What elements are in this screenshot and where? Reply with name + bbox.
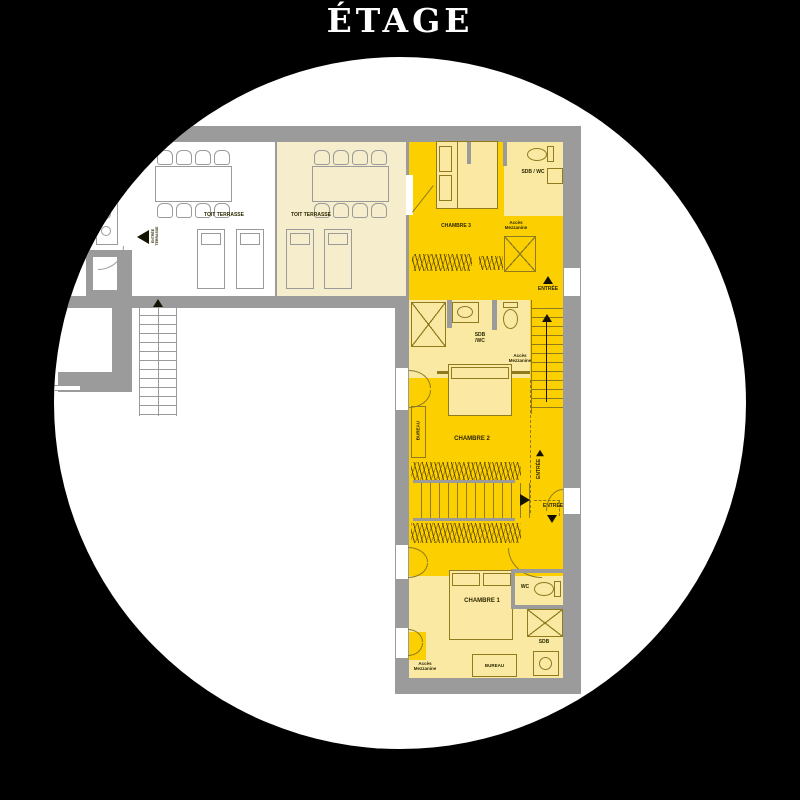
acces-line2: Mezzanine [505,225,528,230]
acces-line2: Mezzanine [509,358,532,363]
sun-lounger [324,229,352,289]
wall-stub [511,569,563,573]
shower-icon [527,609,563,637]
wall-shaft-column [112,292,132,376]
floor-plan: TOIT TERRASSE TOIT TERRASSE ENTRÉE [54,57,746,749]
toilet-tank [547,146,554,162]
door-gap [396,368,408,410]
lounger-pillow [240,233,260,245]
plan-circle-viewport: TOIT TERRASSE TOIT TERRASSE ENTRÉE [54,57,746,749]
room-label-sdb: SDB [528,640,560,646]
room-label-chambre3: CHAMBRE 3 [426,224,486,230]
wardrobe-hatch [479,256,503,270]
toilet-icon [527,148,547,161]
toilet-tank [554,581,561,597]
wardrobe-hatch [412,254,472,271]
pillow-icon [439,146,452,172]
terrace-entry-label: ENTRÉE TERRASSE [151,221,159,251]
door-gap [406,175,413,215]
entry-label-vertical: ENTRÉE [537,451,543,487]
chair-icon [176,150,192,165]
sun-lounger [236,229,264,289]
sdb-mid-line2: /WC [475,338,485,344]
stair-stem [546,322,547,402]
bureau-label: BUREAU [415,414,420,448]
door-gap [396,545,408,579]
staircase-mid [413,483,531,518]
sun-lounger [197,229,225,289]
wall-wing-bottom [395,678,581,694]
acces-mezzanine-label: Accès Mezzanine [492,220,540,230]
chair-icon [371,203,387,218]
room-label-chambre1: CHAMBRE 1 [451,598,513,605]
stair-direction-arrow-icon [520,494,530,506]
chair-icon [314,150,330,165]
pillow-band [451,367,509,379]
door-gap [564,488,580,514]
room-label-chambre2: CHAMBRE 2 [441,436,503,443]
terrace-left-label: TOIT TERRASSE [179,213,269,219]
wall-top [54,126,581,142]
floor-plan-page: ÉTAGE [0,0,800,800]
handrail [413,518,515,521]
entry-arrow-icon [547,515,557,523]
chair-icon [371,150,387,165]
door-gap [396,628,408,658]
wall-stub [467,142,471,164]
chair-icon [333,150,349,165]
wall-wing-right [563,126,581,694]
bed-fold-line [457,142,458,208]
terrace-entry-line2: TERRASSE [155,226,159,245]
room-label-wc: WC [516,585,534,591]
chair-icon [157,150,173,165]
window-left-room [54,385,80,391]
terrace-right-label: TOIT TERRASSE [266,213,356,219]
acces-mezzanine-label: Accès Mezzanine [496,353,544,363]
sun-lounger [286,229,314,289]
chair-icon [352,150,368,165]
page-title: ÉTAGE [0,1,800,40]
burner-icon [101,209,111,219]
stair-direction-arrow-icon [153,299,163,307]
toilet-tank [503,302,518,308]
wall-stub [447,300,452,328]
lounger-pillow [201,233,221,245]
entry-arrow-icon [543,276,553,284]
sink-basin [539,657,552,670]
dining-table [155,166,232,202]
entry-label-top: ENTRÉE [528,287,568,293]
staircase-divider [158,298,159,416]
pillow-icon [452,573,480,586]
sink-icon [547,168,563,184]
dining-table [312,166,389,202]
room-label-sdb-mid: SDB /WC [458,333,502,345]
sink-basin [457,306,473,318]
acces-mezzanine-label: Accès Mezzanine [404,661,446,671]
chair-icon [195,150,211,165]
chair-icon [214,150,230,165]
burner-icon [101,226,111,236]
pillow-icon [483,573,511,586]
wardrobe-hatch [411,462,521,480]
mezzanine-stair [504,236,536,272]
wall-stub [511,569,515,609]
wall-stub [503,142,507,166]
bureau-label: BUREAU [475,663,514,668]
terrace-entry-arrow-icon [137,230,149,244]
stair-direction-arrow-icon [542,314,552,322]
toilet-icon [534,582,554,596]
acces-line2: Mezzanine [414,666,437,671]
shower-icon [411,302,446,347]
pillow-icon [439,175,452,201]
lounger-pillow [328,233,348,245]
toilet-icon [503,309,518,329]
wall-stub [492,300,497,330]
wardrobe-hatch [411,523,521,543]
chair-icon [157,203,173,218]
lounger-pillow [290,233,310,245]
